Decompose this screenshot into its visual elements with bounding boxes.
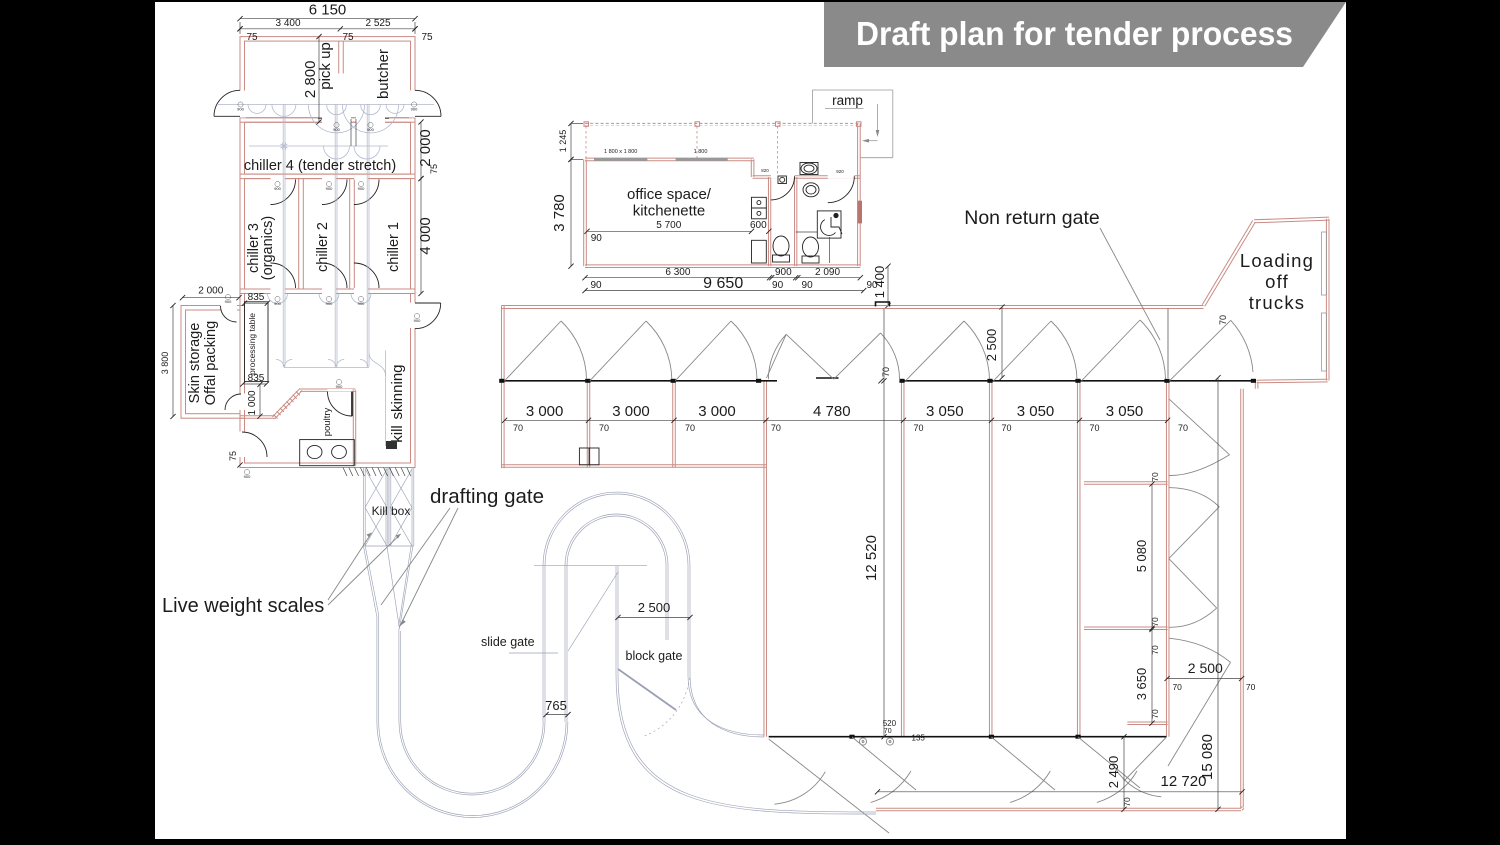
svg-text:70: 70 — [1218, 315, 1228, 325]
svg-text:900: 900 — [358, 186, 365, 191]
svg-text:75: 75 — [228, 451, 238, 461]
svg-text:90: 90 — [591, 233, 603, 244]
svg-text:chiller 4 (tender stretch): chiller 4 (tender stretch) — [244, 158, 396, 174]
svg-text:900: 900 — [414, 318, 421, 323]
svg-text:900: 900 — [336, 384, 343, 389]
svg-text:drafting gate: drafting gate — [430, 485, 544, 508]
svg-text:900: 900 — [358, 301, 365, 306]
svg-text:3 800: 3 800 — [160, 352, 170, 375]
svg-text:900: 900 — [775, 267, 792, 278]
svg-text:2 500: 2 500 — [984, 329, 999, 362]
svg-text:block gate: block gate — [626, 649, 683, 663]
svg-text:1 245: 1 245 — [558, 130, 568, 153]
svg-text:trucks: trucks — [1249, 292, 1306, 313]
svg-text:Kill box: Kill box — [372, 504, 411, 518]
svg-text:1 400: 1 400 — [872, 266, 887, 299]
svg-text:835: 835 — [248, 292, 265, 303]
svg-text:900: 900 — [237, 107, 244, 112]
svg-text:6 300: 6 300 — [665, 267, 690, 278]
svg-text:135: 135 — [912, 734, 926, 743]
svg-text:off: off — [1265, 271, 1289, 292]
svg-text:900: 900 — [367, 127, 374, 132]
svg-text:12 520: 12 520 — [863, 535, 880, 581]
svg-text:1 800 x 1 800: 1 800 x 1 800 — [604, 149, 637, 155]
svg-text:3 050: 3 050 — [1017, 403, 1055, 420]
svg-text:2 490: 2 490 — [1106, 756, 1121, 789]
svg-text:Live weight scales: Live weight scales — [162, 595, 324, 617]
svg-text:70: 70 — [1150, 617, 1160, 627]
svg-text:kill: kill — [389, 425, 406, 443]
svg-text:poultry: poultry — [322, 407, 333, 436]
svg-text:3 400: 3 400 — [275, 18, 300, 29]
svg-text:2 500: 2 500 — [638, 600, 671, 615]
svg-text:3 050: 3 050 — [1106, 403, 1144, 420]
svg-text:9 650: 9 650 — [703, 275, 743, 292]
svg-text:skinning: skinning — [389, 364, 406, 419]
svg-text:900: 900 — [411, 107, 418, 112]
svg-text:900: 900 — [326, 301, 333, 306]
svg-text:Loading: Loading — [1240, 250, 1314, 271]
svg-text:2 525: 2 525 — [365, 18, 390, 29]
svg-text:75: 75 — [342, 32, 354, 43]
svg-text:(organics): (organics) — [260, 216, 276, 280]
svg-text:900: 900 — [225, 299, 232, 304]
svg-text:butcher: butcher — [375, 49, 392, 99]
svg-text:3 650: 3 650 — [1134, 668, 1149, 701]
svg-text:70: 70 — [1150, 709, 1160, 719]
svg-text:920: 920 — [836, 169, 844, 174]
svg-text:office space/: office space/ — [627, 186, 712, 203]
svg-text:processing table: processing table — [247, 313, 257, 375]
svg-text:1 000: 1 000 — [247, 390, 258, 415]
svg-text:3 000: 3 000 — [526, 403, 564, 420]
svg-text:5 700: 5 700 — [656, 220, 681, 231]
svg-text:Non return gate: Non return gate — [964, 207, 1100, 229]
svg-text:70: 70 — [1002, 423, 1012, 433]
svg-text:75: 75 — [421, 32, 433, 43]
svg-text:70: 70 — [914, 423, 924, 433]
svg-text:5 080: 5 080 — [1134, 540, 1149, 573]
svg-text:4 780: 4 780 — [813, 403, 851, 420]
svg-text:75: 75 — [429, 164, 439, 174]
svg-text:765: 765 — [545, 698, 567, 713]
svg-text:2 800: 2 800 — [302, 61, 319, 99]
svg-text:70: 70 — [513, 423, 523, 433]
svg-text:2 000: 2 000 — [198, 286, 223, 297]
svg-text:70: 70 — [881, 367, 891, 377]
svg-text:900: 900 — [244, 474, 251, 479]
svg-text:90: 90 — [802, 280, 814, 291]
svg-text:70: 70 — [1246, 682, 1256, 692]
svg-text:2 000: 2 000 — [417, 129, 434, 167]
svg-text:90: 90 — [772, 280, 784, 291]
svg-text:70: 70 — [1090, 423, 1100, 433]
svg-text:chiller 1: chiller 1 — [386, 222, 402, 272]
svg-text:75: 75 — [246, 32, 258, 43]
svg-text:70: 70 — [1150, 645, 1160, 655]
svg-text:4 000: 4 000 — [417, 217, 434, 255]
svg-text:70: 70 — [1172, 682, 1182, 692]
svg-text:820: 820 — [761, 168, 769, 173]
svg-text:ramp: ramp — [832, 93, 863, 108]
svg-text:70: 70 — [884, 728, 892, 735]
svg-text:70: 70 — [599, 423, 609, 433]
svg-text:2 090: 2 090 — [815, 267, 840, 278]
svg-text:12 720: 12 720 — [1161, 773, 1207, 790]
svg-text:70: 70 — [1150, 472, 1160, 482]
svg-text:3 000: 3 000 — [698, 403, 736, 420]
svg-text:70: 70 — [685, 423, 695, 433]
svg-text:Skin storage: Skin storage — [187, 323, 203, 404]
svg-text:6 150: 6 150 — [309, 2, 347, 19]
svg-text:70: 70 — [1122, 797, 1132, 807]
svg-text:3 050: 3 050 — [926, 403, 964, 420]
svg-text:3 780: 3 780 — [551, 194, 568, 232]
svg-text:70: 70 — [1178, 423, 1188, 433]
svg-text:pick up: pick up — [317, 42, 334, 90]
svg-text:Offal packing: Offal packing — [203, 321, 219, 405]
svg-text:900: 900 — [274, 186, 281, 191]
svg-text:Draft plan for tender process: Draft plan for tender process — [856, 15, 1293, 52]
svg-text:900: 900 — [274, 301, 281, 306]
svg-text:900: 900 — [333, 127, 340, 132]
svg-text:1 800: 1 800 — [694, 149, 708, 155]
svg-text:3 000: 3 000 — [612, 403, 650, 420]
svg-text:kitchenette: kitchenette — [633, 203, 706, 220]
svg-text:chiller 2: chiller 2 — [315, 222, 331, 272]
svg-text:slide gate: slide gate — [481, 635, 535, 649]
svg-text:520: 520 — [883, 719, 897, 728]
svg-text:600: 600 — [750, 220, 767, 231]
svg-text:70: 70 — [771, 423, 781, 433]
svg-text:90: 90 — [590, 280, 602, 291]
svg-text:900: 900 — [326, 186, 333, 191]
